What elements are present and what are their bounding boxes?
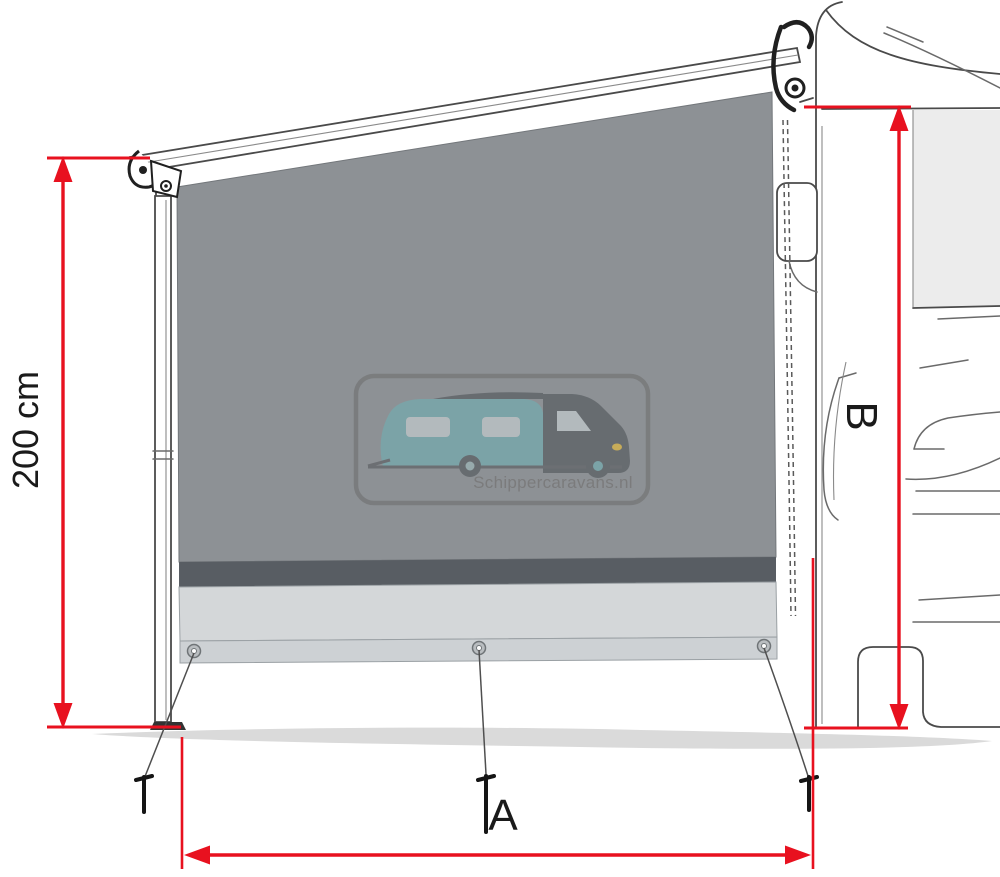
watermark-text: Schippercaravans.nl bbox=[473, 473, 633, 493]
wheel-arch bbox=[858, 647, 1000, 728]
vehicle-outline bbox=[816, 2, 1000, 728]
tent-peg-left bbox=[136, 776, 152, 812]
eyelet bbox=[758, 640, 771, 653]
dimension-label-vehicle-height: B bbox=[839, 401, 883, 430]
panel-skirt bbox=[179, 582, 777, 641]
dimension-label-height: 200 cm bbox=[8, 371, 44, 489]
dimension-label-width: A bbox=[488, 794, 517, 838]
awning-dimension-diagram: 200 cm B A Schippercaravans.nl bbox=[0, 0, 1000, 877]
awning-winch-cover bbox=[777, 183, 817, 292]
ground-shadow bbox=[92, 728, 992, 749]
diagram-canvas bbox=[0, 0, 1000, 877]
vehicle-window bbox=[913, 110, 1000, 307]
eyelet bbox=[188, 645, 201, 658]
tent-peg-right bbox=[801, 777, 817, 810]
guy-lines bbox=[144, 648, 809, 779]
